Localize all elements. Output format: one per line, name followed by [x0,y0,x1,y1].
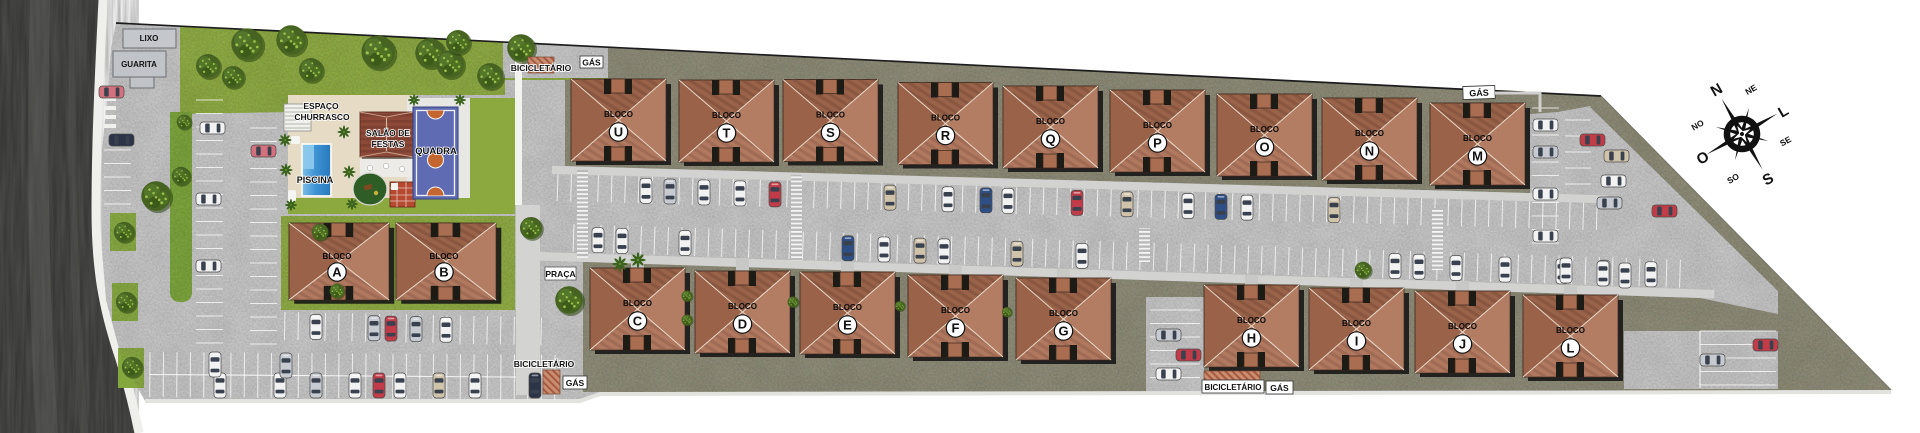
svg-text:O: O [1259,140,1269,155]
svg-text:SALÃO DE: SALÃO DE [366,128,410,138]
svg-text:T: T [723,126,731,141]
svg-text:BICICLETÁRIO: BICICLETÁRIO [511,63,572,73]
svg-text:BLOCO: BLOCO [712,111,741,120]
svg-text:GUARITA: GUARITA [121,60,157,69]
svg-text:S: S [826,125,835,140]
svg-text:BLOCO: BLOCO [941,306,970,315]
svg-text:BLOCO: BLOCO [1237,316,1266,325]
svg-text:G: G [1058,324,1068,339]
svg-text:BLOCO: BLOCO [1143,121,1172,130]
svg-text:PISCINA: PISCINA [297,175,334,185]
svg-text:BICICLETÁRIO: BICICLETÁRIO [1205,383,1262,392]
svg-text:BLOCO: BLOCO [1036,117,1065,126]
svg-text:GÁS: GÁS [582,58,601,68]
svg-text:BLOCO: BLOCO [623,299,652,308]
svg-text:QUADRA: QUADRA [415,146,457,157]
svg-text:BLOCO: BLOCO [931,114,960,123]
svg-text:M: M [1472,149,1483,164]
svg-text:PRAÇA: PRAÇA [545,269,575,279]
svg-text:A: A [332,265,342,280]
svg-text:GÁS: GÁS [1469,88,1489,99]
svg-text:U: U [614,125,623,140]
svg-text:H: H [1247,331,1256,346]
svg-text:BLOCO: BLOCO [728,302,757,311]
svg-text:BLOCO: BLOCO [1049,309,1078,318]
svg-text:E: E [843,318,852,333]
svg-text:R: R [941,128,951,143]
svg-text:BLOCO: BLOCO [430,252,459,261]
svg-text:C: C [633,314,643,329]
svg-text:Q: Q [1045,132,1055,147]
svg-text:BLOCO: BLOCO [323,252,352,261]
svg-text:B: B [439,265,448,280]
svg-text:GÁS: GÁS [566,378,585,388]
svg-text:P: P [1153,136,1162,151]
svg-text:BICICLETÁRIO: BICICLETÁRIO [514,359,575,369]
svg-text:BLOCO: BLOCO [1463,134,1492,143]
svg-text:BLOCO: BLOCO [1250,125,1279,134]
svg-text:FESTAS: FESTAS [372,139,405,149]
svg-text:N: N [1365,144,1374,159]
svg-text:BLOCO: BLOCO [1355,129,1384,138]
svg-text:F: F [952,321,960,336]
svg-text:D: D [738,317,747,332]
svg-text:BLOCO: BLOCO [833,303,862,312]
svg-text:I: I [1355,334,1359,349]
svg-text:GÁS: GÁS [1270,383,1289,393]
svg-text:ESPAÇO: ESPAÇO [303,101,339,111]
svg-text:LIXO: LIXO [140,34,159,43]
svg-text:L: L [1567,341,1575,356]
svg-text:BLOCO: BLOCO [1556,326,1585,335]
svg-text:BLOCO: BLOCO [1342,319,1371,328]
svg-text:BLOCO: BLOCO [1448,322,1477,331]
svg-text:BLOCO: BLOCO [816,111,845,120]
svg-text:J: J [1459,337,1466,352]
svg-text:BLOCO: BLOCO [604,110,633,119]
svg-text:CHURRASCO: CHURRASCO [294,112,350,122]
